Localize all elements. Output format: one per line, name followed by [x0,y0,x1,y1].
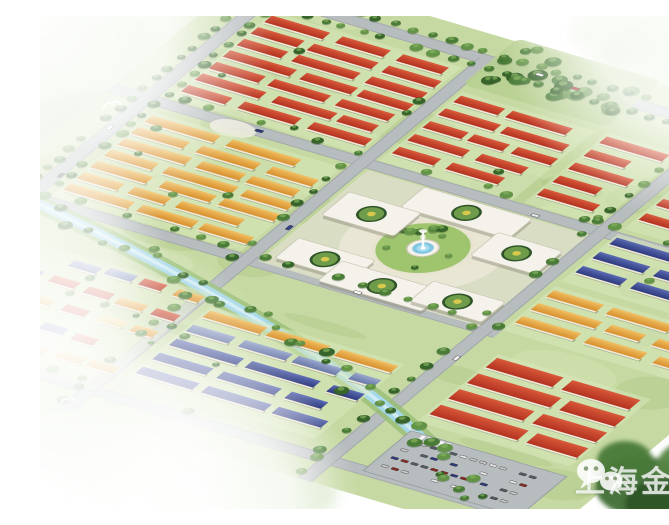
rendering-canvas [40,16,669,509]
aerial-masterplan-rendering: 上海金山 [40,16,669,509]
